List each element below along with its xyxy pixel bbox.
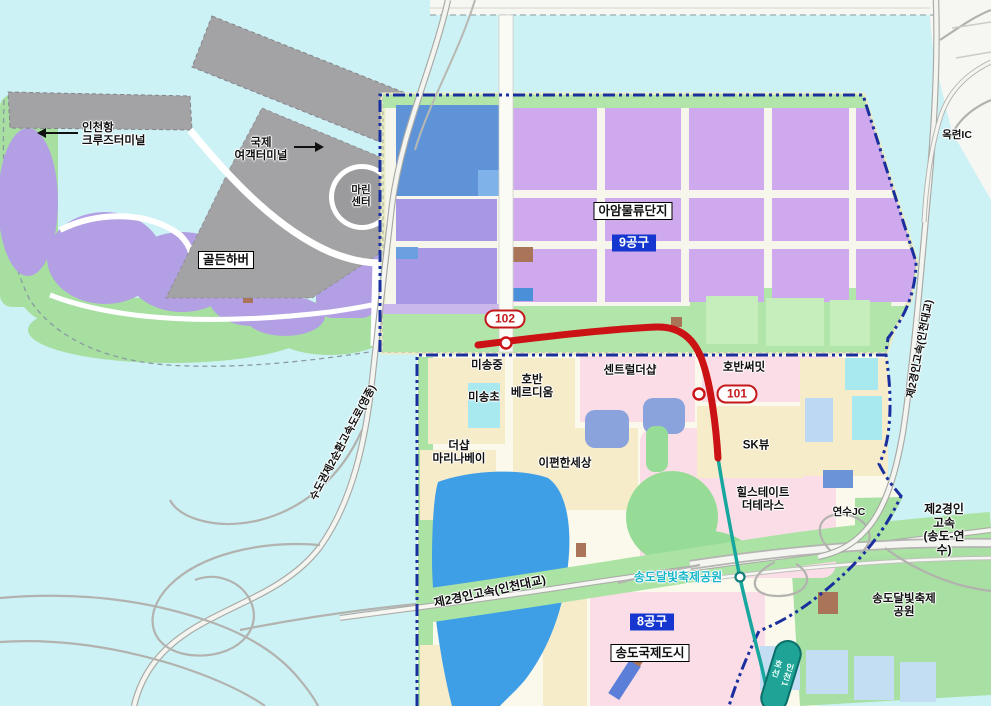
cruise-terminal-label: 인천항 크루즈터미널 (82, 122, 145, 148)
thesharp-marinabay-label: 더샵 마리나베이 (433, 440, 486, 466)
station-101-badge: 101 (717, 385, 758, 404)
central-thesharp-label: 센트럴더샵 (604, 365, 657, 378)
cruise-terminal-arrow (46, 132, 78, 134)
aam-logistics-box: 아암물류단지 (593, 202, 672, 220)
golden-harbor-box: 골든하버 (198, 251, 254, 269)
yeonsu-jc-label: 연수JC (833, 507, 866, 519)
district9-blocks (383, 95, 940, 352)
intl-terminal-label: 국제 여객터미널 (235, 137, 288, 163)
marine-center-label: 마린 센터 (351, 185, 370, 209)
cruise-terminal-arrowhead-icon (37, 128, 46, 138)
songdo-area-map: 인천항 크루즈터미널 국제 여객터미널 마린 센터 골든하버 아암물류단지 9공… (0, 0, 991, 706)
songdo-city-box: 송도국제도시 (610, 644, 689, 662)
misong-middle-label: 미송중 (471, 360, 503, 373)
hillstate-label: 힐스테이트 더테라스 (737, 487, 790, 513)
district9-badge: 9공구 (612, 235, 656, 252)
hoban-verdium-label: 호반 베르디움 (511, 374, 553, 400)
moonlight-park-label: 송도달빛축제 공원 (872, 593, 935, 619)
misong-elementary-label: 미송초 (468, 392, 500, 405)
intl-terminal-arrowhead-icon (315, 142, 324, 152)
map-canvas (0, 0, 991, 706)
station-102-marker (501, 338, 512, 349)
district8-badge: 8공구 (630, 614, 674, 631)
station-102-badge: 102 (485, 310, 526, 329)
epyeonhansesang-label: 이편한세상 (539, 458, 592, 471)
north-south-road (499, 15, 513, 352)
moonlight-park-label-cyan: 송도달빛축제공원 (634, 571, 722, 585)
gyeongin2-songdo-yeonsu-label: 제2경인고속 (송도-연수) (921, 503, 968, 557)
okryeon-ic-label: 옥련IC (942, 130, 972, 142)
hoban-summit-label: 호반써밋 (723, 362, 765, 375)
intl-terminal-arrow (294, 146, 316, 148)
station-101-marker (694, 389, 705, 400)
park-station-marker (736, 573, 745, 582)
sk-view-label: SK뷰 (743, 440, 770, 453)
